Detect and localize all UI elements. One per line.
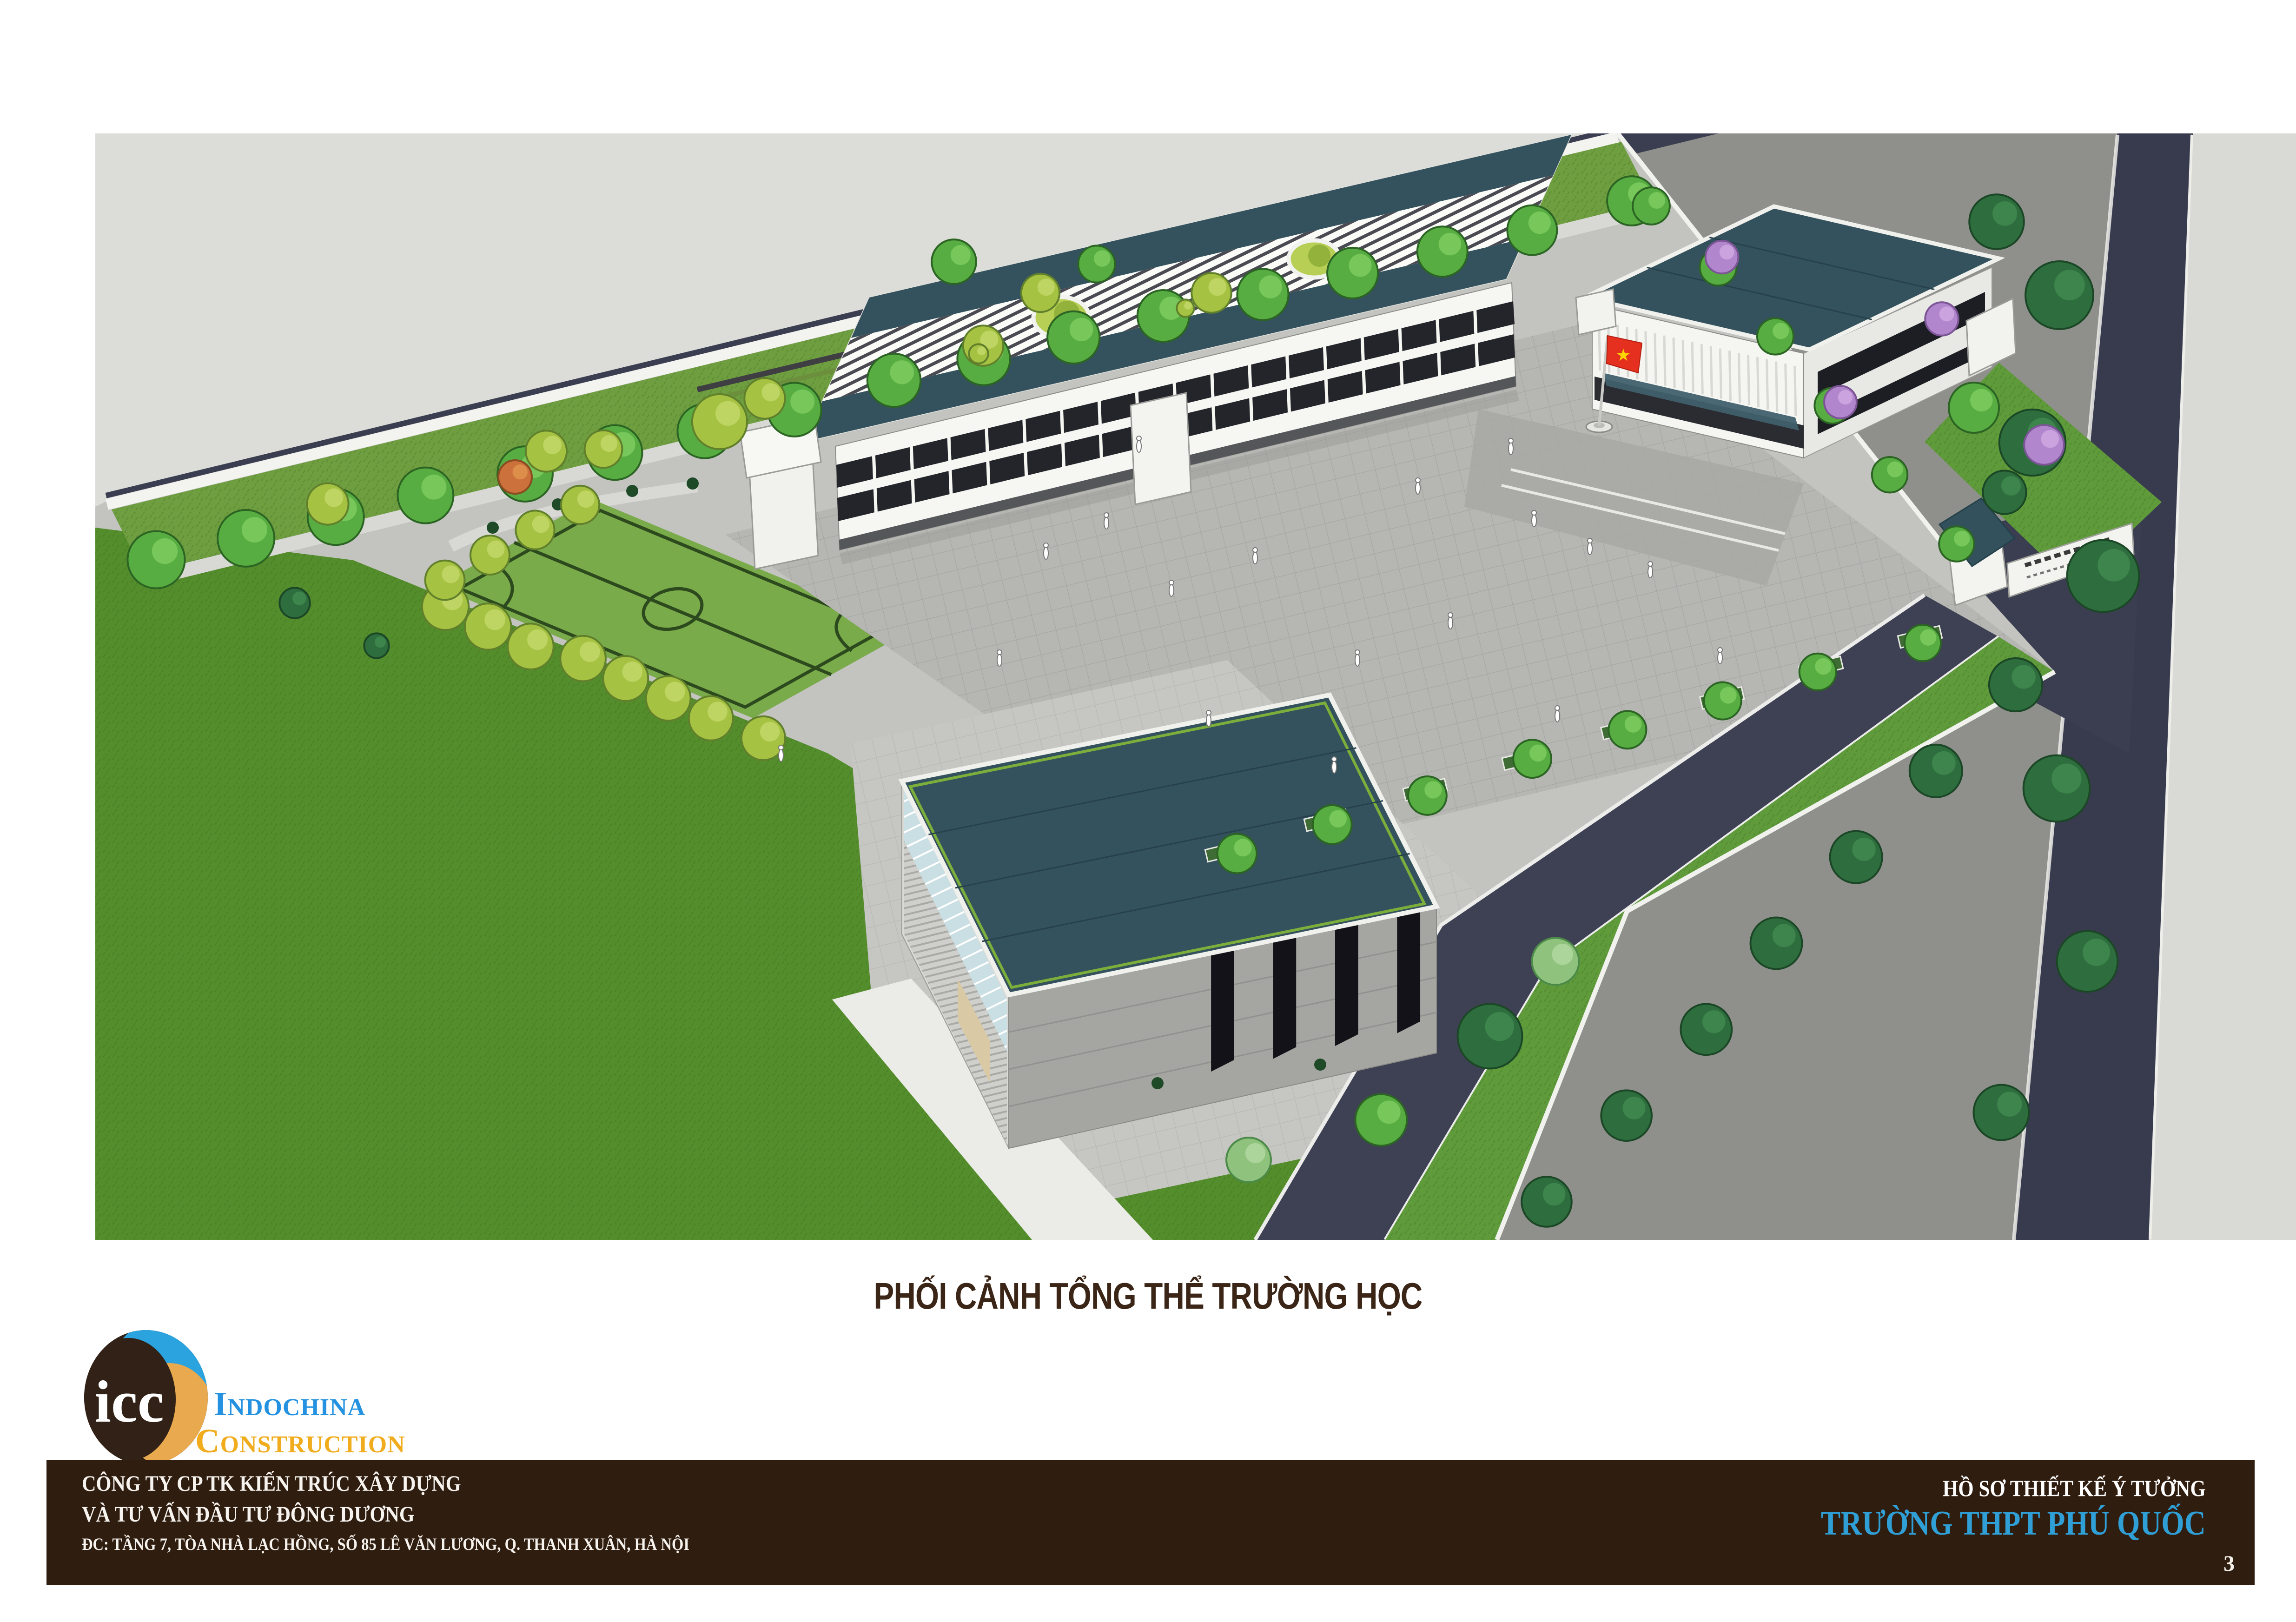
company-info: CÔNG TY CP TK KIẾN TRÚC XÂY DỰNG VÀ TƯ V… <box>82 1473 689 1553</box>
project-name: TRƯỜNG THPT PHÚ QUỐC <box>1821 1506 2206 1541</box>
company-address: ĐC: TẦNG 7, TÒA NHÀ LẠC HỒNG, SỐ 85 LÊ V… <box>82 1536 689 1553</box>
flag-star: ★ <box>1616 346 1631 365</box>
company-name-line1: CÔNG TY CP TK KIẾN TRÚC XÂY DỰNG <box>82 1473 689 1495</box>
site-plan-rendering: ★ <box>0 0 2296 1622</box>
logo-word-construction: Construction <box>195 1423 405 1460</box>
presentation-sheet: ★ PHỐI CẢNH TỔNG THỂ TRƯỜN <box>0 0 2296 1622</box>
icc-logo: icc <box>82 1329 212 1468</box>
company-name-line2: VÀ TƯ VẤN ĐẦU TƯ ĐÔNG DƯƠNG <box>82 1503 689 1526</box>
logo-wordmark: Indochina Construction <box>195 1385 405 1460</box>
dossier-type: HỒ SƠ THIẾT KẾ Ý TƯỞNG <box>1821 1476 2206 1500</box>
project-info: HỒ SƠ THIẾT KẾ Ý TƯỞNG TRƯỜNG THPT PHÚ Q… <box>1821 1476 2206 1541</box>
drawing-caption: PHỐI CẢNH TỔNG THỂ TRƯỜNG HỌC <box>207 1275 2090 1317</box>
logo-monogram: icc <box>94 1369 164 1435</box>
page-number: 3 <box>2213 1551 2245 1576</box>
logo-word-indochina: Indochina <box>214 1385 405 1423</box>
